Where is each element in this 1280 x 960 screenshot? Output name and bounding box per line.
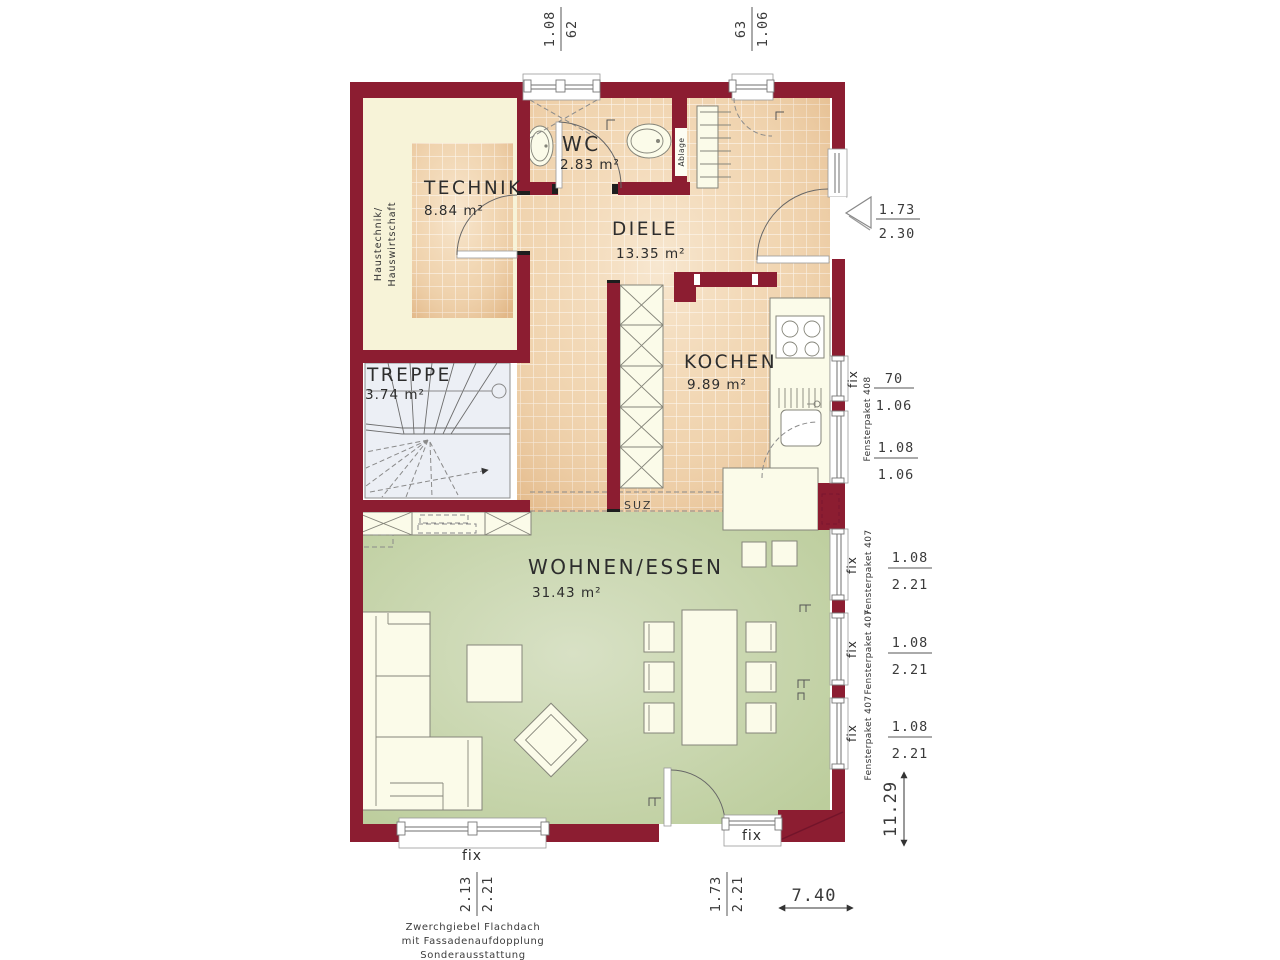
room-area-treppe: 3.74 m² — [365, 387, 425, 403]
room-label-treppe: TREPPE — [366, 365, 452, 386]
svg-text:Fensterpaket 407: Fensterpaket 407 — [864, 609, 874, 694]
svg-text:Fensterpaket 407: Fensterpaket 407 — [864, 529, 874, 614]
svg-text:Fensterpaket 408: Fensterpaket 408 — [863, 376, 873, 461]
room-label-wohnen: WOHNEN/ESSEN — [528, 555, 723, 579]
svg-text:2.13: 2.13 — [458, 876, 474, 913]
window-bottom-fixed — [397, 818, 549, 848]
room-area-wohnen: 31.43 m² — [532, 585, 602, 601]
entrance-door-leaf — [757, 256, 829, 263]
svg-text:63: 63 — [733, 20, 749, 38]
fix-label-bottom-window: fix — [462, 848, 482, 864]
room-area-kochen: 9.89 m² — [687, 377, 747, 393]
chair — [644, 662, 674, 692]
coffee-table — [467, 645, 522, 702]
svg-text:1.08: 1.08 — [892, 550, 929, 566]
svg-text:Fensterpaket 407: Fensterpaket 407 — [864, 695, 874, 780]
dim-living-window-3: fix Fensterpaket 407 1.08 2.21 — [845, 695, 932, 780]
haustechnik-label-1: Haustechnik/ — [373, 207, 384, 281]
wc-toilet — [627, 124, 671, 158]
dim-top-window-left: 1.08 62 — [542, 7, 580, 51]
technik-door-leaf — [457, 251, 517, 258]
dim-top-window-right: 63 1.06 — [733, 7, 771, 51]
haustechnik-label-2: Hauswirtschaft — [387, 202, 398, 287]
svg-text:62: 62 — [564, 20, 580, 38]
room-label-kochen: KOCHEN — [684, 352, 777, 373]
room-area-technik: 8.84 m² — [424, 203, 484, 219]
kitchen-tall-cabinets — [620, 285, 663, 488]
svg-text:1.08: 1.08 — [892, 635, 929, 651]
dim-terrace-door: 1.73 2.21 — [708, 872, 746, 916]
wall-kitchen-top — [694, 272, 777, 287]
chair — [644, 622, 674, 652]
svg-text:2.21: 2.21 — [480, 876, 496, 913]
wall-technik-right-lower — [517, 255, 530, 363]
dining-table-set — [644, 610, 776, 745]
svg-text:fix: fix — [845, 640, 859, 658]
dim-bottom-window: 2.13 2.21 — [458, 872, 496, 916]
ablage-label: Ablage — [677, 138, 686, 167]
room-label-wc: WC — [562, 132, 601, 156]
bar-stool — [772, 541, 797, 566]
wall-technik-bottom — [350, 350, 530, 363]
terrace-door-leaf — [664, 768, 671, 826]
entrance-marker: 1.73 2.30 — [846, 197, 920, 242]
svg-text:70: 70 — [885, 371, 903, 387]
kitchen-sink — [781, 410, 821, 446]
dim-living-window-1: fix Fensterpaket 407 1.08 2.21 — [845, 529, 932, 614]
svg-text:1.06: 1.06 — [878, 467, 915, 483]
svg-text:7.40: 7.40 — [792, 886, 837, 906]
room-label-diele: DIELE — [612, 219, 678, 240]
footer-line-3: Sonderausstattung — [420, 950, 525, 960]
floor-plan-canvas: SUZ — [0, 0, 1280, 960]
entrance-sidelight — [828, 149, 847, 197]
svg-text:1.08: 1.08 — [892, 719, 929, 735]
svg-text:2.30: 2.30 — [879, 226, 916, 242]
chair — [644, 703, 674, 733]
svg-text:1.06: 1.06 — [755, 11, 771, 48]
footer-line-1: Zwerchgiebel Flachdach — [406, 922, 541, 933]
entrance-opening — [830, 197, 846, 259]
svg-text:fix: fix — [846, 370, 860, 388]
bar-stool — [742, 542, 766, 567]
svg-text:2.21: 2.21 — [892, 662, 929, 678]
wall-diele-kochen — [607, 283, 620, 512]
svg-text:2.21: 2.21 — [730, 876, 746, 913]
dim-total-height: 11.29 — [881, 772, 904, 846]
svg-text:1.08: 1.08 — [878, 440, 915, 456]
svg-text:2.21: 2.21 — [892, 746, 929, 762]
footer-note: Zwerchgiebel Flachdach mit Fassadenaufdo… — [402, 922, 545, 960]
kitchen-peninsula — [723, 468, 818, 530]
svg-text:fix: fix — [845, 724, 859, 742]
svg-text:fix: fix — [845, 556, 859, 574]
suz-label: SUZ — [624, 499, 652, 512]
chair — [746, 622, 776, 652]
svg-text:1.73: 1.73 — [879, 202, 916, 218]
wall-kitchen-top-stub — [674, 272, 696, 302]
wall-treppe-bottom — [350, 500, 530, 512]
terrace-opening — [659, 824, 724, 842]
fix-label-terrace: fix — [742, 828, 762, 844]
wall-left — [350, 82, 363, 842]
dim-total-width: 7.40 — [779, 886, 853, 908]
dim-kitchen-windows: fix Fensterpaket 408 70 1.06 1.08 1.06 — [846, 370, 918, 483]
kitchen-counter — [770, 298, 830, 490]
chair — [746, 662, 776, 692]
footer-line-2: mit Fassadenaufdopplung — [402, 936, 545, 947]
room-area-wc: 2.83 m² — [560, 157, 620, 173]
svg-text:1.73: 1.73 — [708, 876, 724, 913]
dining-table — [682, 610, 737, 745]
svg-text:2.21: 2.21 — [892, 577, 929, 593]
room-label-technik: TECHNIK — [423, 178, 523, 199]
chair — [746, 703, 776, 733]
svg-text:11.29: 11.29 — [881, 781, 901, 837]
svg-text:1.08: 1.08 — [542, 11, 558, 48]
room-area-diele: 13.35 m² — [616, 246, 686, 262]
svg-text:1.06: 1.06 — [876, 398, 913, 414]
dim-living-window-2: fix Fensterpaket 407 1.08 2.21 — [845, 609, 932, 694]
